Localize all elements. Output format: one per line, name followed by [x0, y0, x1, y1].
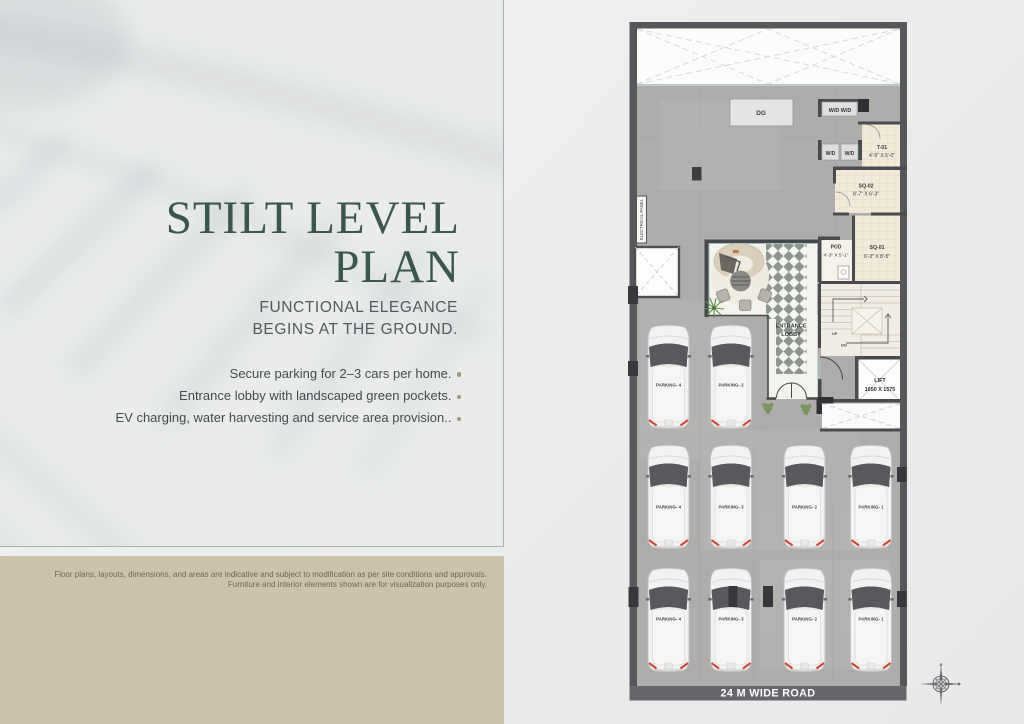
- svg-text:ENTRANCE: ENTRANCE: [776, 324, 807, 330]
- svg-text:PARKING- 1: PARKING- 1: [858, 505, 884, 510]
- svg-text:T-01: T-01: [877, 145, 887, 151]
- svg-text:SQ-01: SQ-01: [870, 245, 885, 251]
- svg-text:POD: POD: [831, 245, 842, 251]
- svg-text:24 M WIDE ROAD: 24 M WIDE ROAD: [721, 688, 816, 700]
- svg-text:LIFT: LIFT: [874, 378, 886, 384]
- svg-text:W/D: W/D: [826, 151, 836, 157]
- svg-text:PARKING- 2: PARKING- 2: [792, 617, 818, 622]
- svg-text:1650 X 1575: 1650 X 1575: [865, 387, 896, 393]
- svg-text:4'-3" X 5'-1": 4'-3" X 5'-1": [824, 253, 849, 259]
- svg-text:PARKING- 4: PARKING- 4: [656, 505, 682, 510]
- svg-text:6'-3" X 8'-5": 6'-3" X 8'-5": [864, 254, 890, 260]
- svg-text:PARKING- 1: PARKING- 1: [858, 617, 884, 622]
- svg-text:PARKING- 2: PARKING- 2: [718, 383, 744, 388]
- svg-text:UP: UP: [832, 331, 838, 336]
- svg-text:PARKING- 4: PARKING- 4: [656, 617, 682, 622]
- svg-text:LOBBY: LOBBY: [781, 332, 801, 338]
- svg-text:PARKING- 3: PARKING- 3: [718, 505, 744, 510]
- svg-text:8'-7" X 6'-3": 8'-7" X 6'-3": [853, 192, 879, 198]
- svg-text:W/D W/D: W/D W/D: [829, 108, 852, 114]
- svg-text:4'-9" X 5'-0": 4'-9" X 5'-0": [869, 153, 895, 159]
- svg-text:SQ-02: SQ-02: [859, 184, 874, 190]
- svg-text:PARKING- 3: PARKING- 3: [718, 617, 744, 622]
- svg-text:DN: DN: [841, 343, 847, 348]
- svg-text:ELECTRICAL PANEL: ELECTRICAL PANEL: [639, 198, 644, 240]
- svg-text:PARKING- 4: PARKING- 4: [656, 383, 682, 388]
- svg-text:DG: DG: [756, 110, 766, 117]
- svg-text:PARKING- 2: PARKING- 2: [792, 505, 818, 510]
- svg-text:W/D: W/D: [845, 151, 855, 157]
